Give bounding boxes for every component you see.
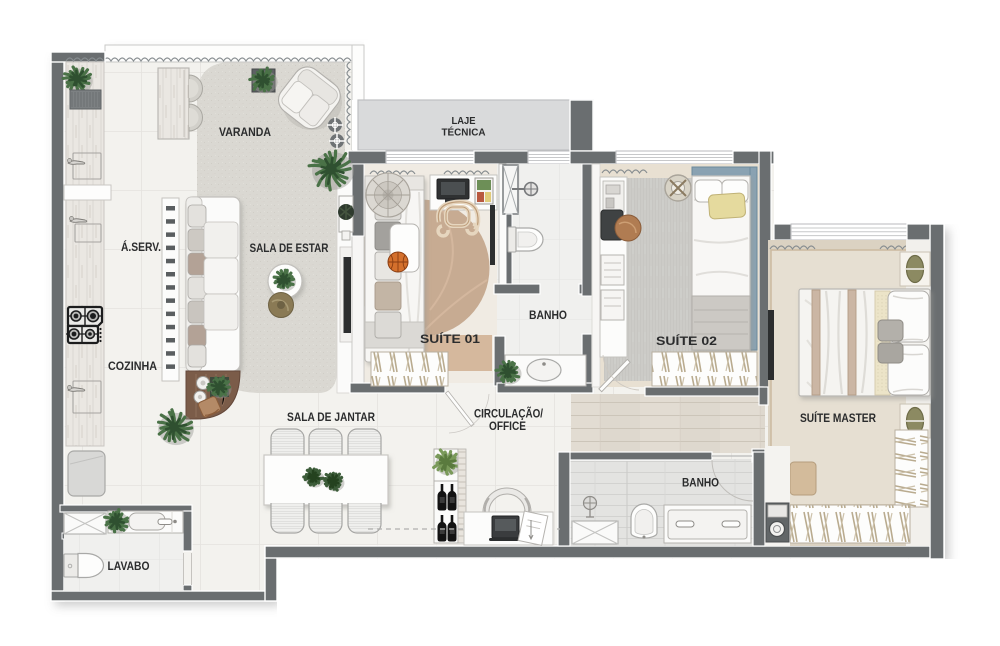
svg-text:BANHO: BANHO bbox=[682, 478, 719, 490]
svg-text:SUÍTE 01: SUÍTE 01 bbox=[420, 333, 481, 346]
svg-text:SALA DE ESTAR: SALA DE ESTAR bbox=[250, 243, 330, 255]
svg-text:SALA DE JANTAR: SALA DE JANTAR bbox=[287, 412, 376, 424]
svg-text:Á.SERV.: Á.SERV. bbox=[121, 241, 161, 254]
svg-text:COZINHA: COZINHA bbox=[108, 361, 157, 373]
svg-text:OFFICE: OFFICE bbox=[489, 421, 526, 433]
svg-text:TÉCNICA: TÉCNICA bbox=[442, 126, 486, 139]
svg-text:SUÍTE 02: SUÍTE 02 bbox=[656, 335, 717, 348]
svg-text:VARANDA: VARANDA bbox=[219, 127, 271, 139]
svg-text:LAJE: LAJE bbox=[452, 115, 476, 127]
svg-text:CIRCULAÇÃO/: CIRCULAÇÃO/ bbox=[474, 408, 544, 421]
svg-text:LAVABO: LAVABO bbox=[108, 559, 150, 573]
svg-text:SUÍTE MASTER: SUÍTE MASTER bbox=[800, 412, 877, 425]
svg-text:BANHO: BANHO bbox=[529, 310, 567, 322]
